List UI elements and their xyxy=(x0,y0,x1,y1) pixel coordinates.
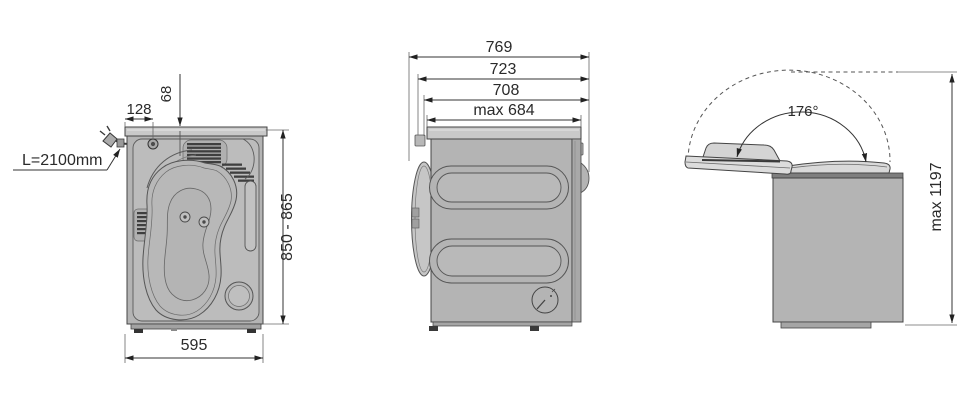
angle-label: 176° xyxy=(787,103,818,120)
rear-base xyxy=(131,324,261,329)
control-dial xyxy=(532,287,558,313)
lid-closed xyxy=(788,161,890,173)
lid-open xyxy=(685,143,792,174)
cord-length-label: L=2100mm xyxy=(22,152,103,169)
cord-leader-line xyxy=(107,149,120,170)
side-view: 769 723 708 max 684 xyxy=(409,39,589,331)
foot xyxy=(530,326,539,331)
dim-label-1197: max 1197 xyxy=(928,162,945,231)
drawing-canvas: 128 68 850 - 865 595 L=2100mm xyxy=(0,0,977,413)
dim-label-723: 723 xyxy=(490,61,517,78)
dimension-drawing: 128 68 850 - 865 595 L=2100mm xyxy=(0,0,977,413)
foot xyxy=(247,329,256,333)
foot xyxy=(429,326,438,331)
cabinet-base xyxy=(781,322,871,328)
side-base xyxy=(433,322,572,326)
dim-label-684: max 684 xyxy=(473,102,534,119)
side-top-cap xyxy=(427,127,581,139)
top-rim xyxy=(772,173,903,178)
foot xyxy=(134,329,143,333)
dim-label-769: 769 xyxy=(486,39,513,56)
rear-view: 128 68 850 - 865 595 L=2100mm xyxy=(13,74,296,363)
hinge-tab xyxy=(415,135,425,146)
open-lid-view: 176° max 1197 xyxy=(685,70,957,328)
dim-label-708: 708 xyxy=(493,82,520,99)
back-panel xyxy=(572,139,581,322)
dim-label-height: 850 - 865 xyxy=(279,193,296,261)
rear-top-cap xyxy=(125,127,267,136)
dim-label-68: 68 xyxy=(158,86,175,103)
dim-label-width: 595 xyxy=(181,337,208,354)
cabinet-body xyxy=(773,178,903,322)
dim-label-128: 128 xyxy=(126,101,151,118)
handle-recess xyxy=(245,181,256,251)
